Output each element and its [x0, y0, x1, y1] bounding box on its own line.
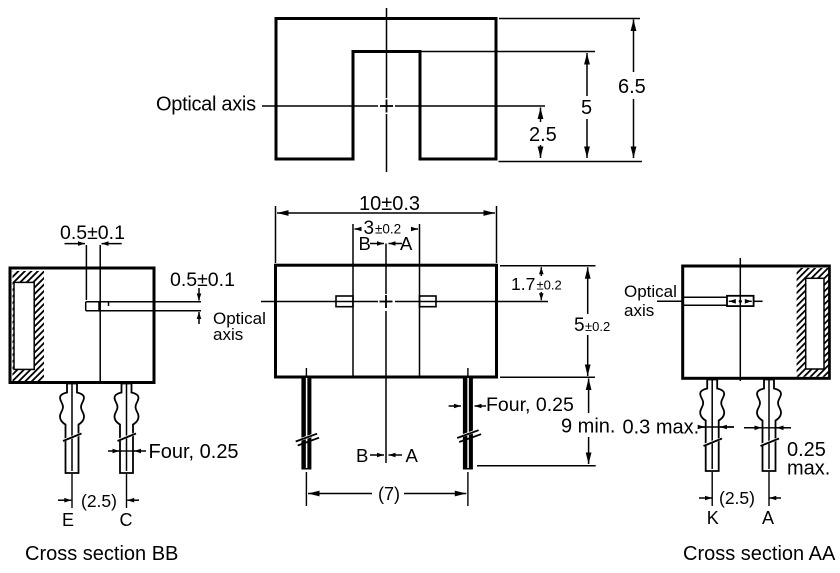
svg-text:2.5: 2.5: [529, 124, 557, 146]
svg-text:C: C: [120, 510, 133, 530]
svg-text:(2.5): (2.5): [719, 488, 755, 508]
svg-text:5: 5: [581, 97, 592, 119]
svg-text:0.5±0.1: 0.5±0.1: [170, 269, 235, 291]
svg-text:±0.2: ±0.2: [537, 278, 562, 293]
svg-text:axis: axis: [213, 325, 243, 344]
svg-text:Cross section BB: Cross section BB: [25, 543, 178, 565]
svg-text:B: B: [359, 233, 371, 254]
svg-text:(2.5): (2.5): [81, 491, 117, 511]
svg-text:max.: max.: [787, 458, 830, 480]
svg-text:B: B: [356, 445, 368, 466]
svg-text:Optical: Optical: [624, 282, 677, 301]
svg-text:0.5±0.1: 0.5±0.1: [60, 222, 125, 244]
svg-text:6.5: 6.5: [618, 76, 646, 98]
svg-text:A: A: [406, 445, 419, 466]
svg-text:(7): (7): [378, 484, 400, 504]
svg-text:5: 5: [574, 315, 585, 336]
svg-text:0.3 max.: 0.3 max.: [623, 417, 700, 439]
svg-text:10±0.3: 10±0.3: [359, 193, 420, 215]
svg-text:Four, 0.25: Four, 0.25: [486, 394, 574, 416]
svg-text:±0.2: ±0.2: [585, 319, 610, 334]
svg-text:Optical axis: Optical axis: [156, 94, 256, 116]
svg-text:±0.2: ±0.2: [375, 222, 401, 237]
svg-text:A: A: [400, 233, 413, 254]
svg-text:A: A: [762, 508, 774, 528]
svg-text:Four, 0.25: Four, 0.25: [149, 441, 239, 463]
svg-text:E: E: [62, 510, 74, 530]
svg-text:9 min.: 9 min.: [561, 416, 615, 438]
svg-text:Cross section AA: Cross section AA: [683, 543, 836, 565]
svg-text:K: K: [707, 508, 719, 528]
svg-text:axis: axis: [624, 301, 654, 320]
svg-text:1.7: 1.7: [511, 274, 535, 294]
